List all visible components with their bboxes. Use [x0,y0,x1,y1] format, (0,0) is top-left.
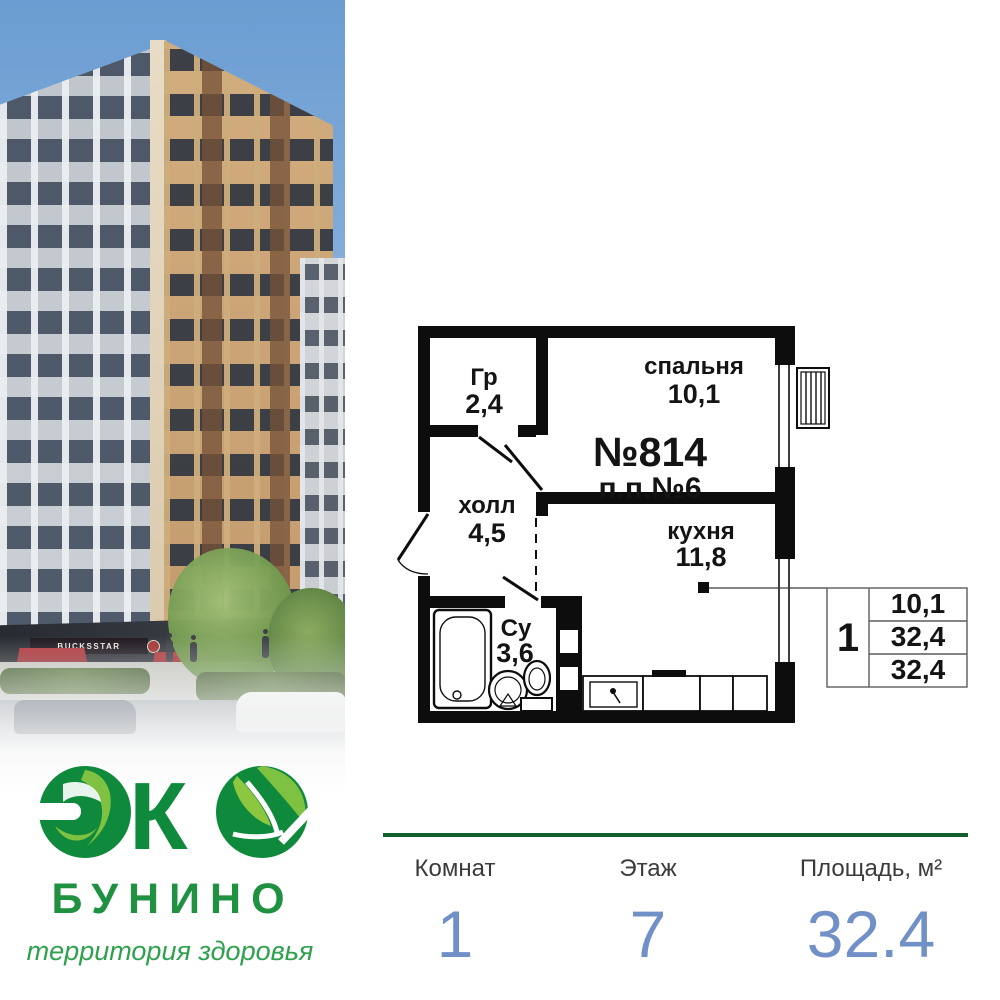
stat-rooms-value: 1 [380,901,530,967]
kitchen-window [775,558,795,663]
area-leader [698,582,827,593]
listing-card: BUCKSSTAR К [0,0,1000,1000]
room-hall-label: холл [458,492,515,519]
room-bedroom-area: 10,1 [668,379,721,409]
stat-floor-value: 7 [573,901,723,967]
stat-floor: Этаж 7 [573,833,723,967]
apartment-pp-number: п.п.№6 [598,472,701,505]
table-rooms-count: 1 [837,616,859,660]
kitchen-counter [583,670,767,711]
bedroom-window [775,364,795,468]
building-photo: BUCKSSTAR [0,0,345,798]
table-overall-area: 32,4 [891,654,946,685]
stat-floor-label: Этаж [573,855,723,883]
balcony-basket [797,368,829,428]
room-bathroom-area: 3,6 [496,638,534,668]
stat-area: Площадь, м² 32.4 [771,833,971,967]
apartment-number: №814 [593,429,707,475]
bathtub-icon [434,610,491,708]
table-total-area: 32,4 [891,621,946,652]
floor-plan: 1 10,1 32,4 32,4 Гр 2,4 спальня 10,1 №81… [385,318,980,730]
building-facade-left [0,46,158,698]
room-hall-area: 4,5 [468,518,506,548]
room-kitchen-area: 11,8 [675,542,726,572]
stat-area-label: Площадь, м² [771,855,971,883]
stat-rooms: Комнат 1 [380,833,530,967]
building-corner [150,40,166,698]
stats-section: Комнат 1 Этаж 7 Площадь, м² 32.4 [0,833,1000,993]
stat-rooms-label: Комнат [380,855,530,883]
room-wardrobe-label: Гр [470,364,497,391]
toilet-icon [521,661,552,711]
room-wardrobe-area: 2,4 [465,389,503,419]
table-living-area: 10,1 [891,588,946,619]
area-summary-table: 1 10,1 32,4 32,4 [827,588,967,687]
stat-area-value: 32.4 [771,901,971,967]
room-kitchen-label: кухня [667,518,735,545]
room-bedroom-label: спальня [644,353,744,380]
